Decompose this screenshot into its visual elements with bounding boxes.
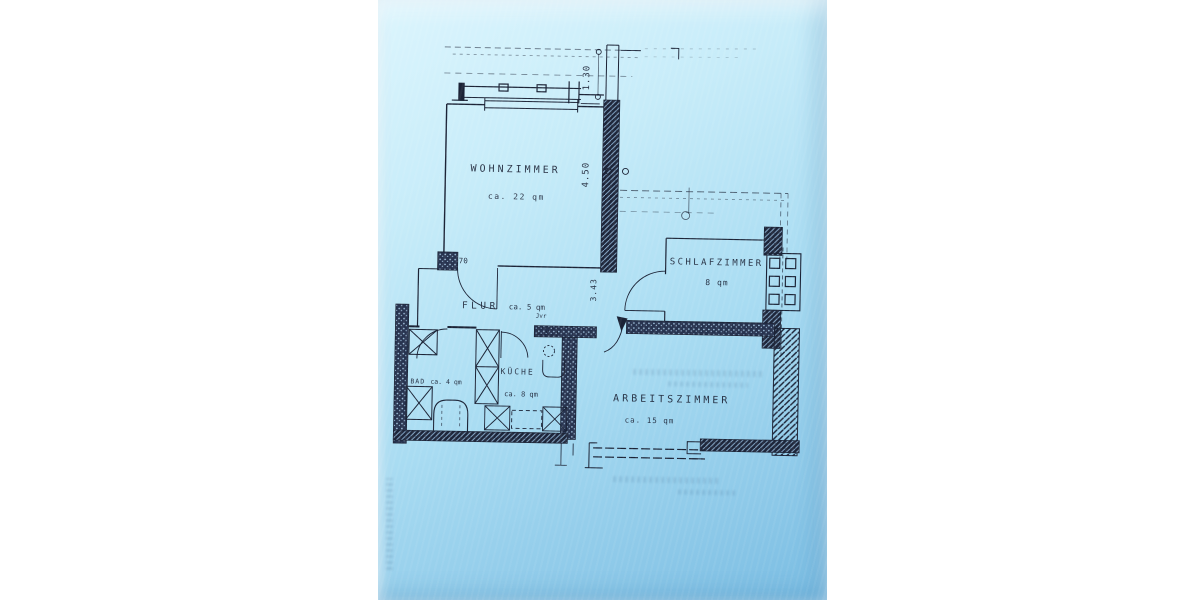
room-area-flur: ca. 5 qm <box>509 302 546 312</box>
scanned-blueprint-page: 1.30 4.50 <box>378 0 827 600</box>
dimension-balcony-depth: 1.30 <box>582 49 601 99</box>
room-label-arbeitszimmer: ARBEITSZIMMER <box>613 393 730 406</box>
dimension-label: 1.30 <box>582 65 592 91</box>
room-area-arbeitszimmer: ca. 15 qm <box>625 415 675 425</box>
party-wall <box>601 45 679 273</box>
room-area-bad: ca. 4 qm <box>430 378 462 387</box>
kueche-fixtures <box>484 327 568 432</box>
dimension-living-room-width: 4.50 <box>581 162 591 188</box>
room-bad-walls <box>393 304 477 445</box>
room-label-bad: BAD <box>410 377 425 385</box>
sink-basin <box>543 345 554 356</box>
room-area-kueche: ca. 8 qm <box>504 390 538 399</box>
room-label-flur: FLUR <box>462 300 499 312</box>
bathtub <box>433 400 468 434</box>
room-area-wohnzimmer: ca. 22 qm <box>488 192 545 202</box>
arbeitszimmer-window <box>555 442 705 470</box>
dimension-door-width: 70 <box>459 256 469 265</box>
room-kueche-walls <box>499 325 596 440</box>
hall-note: Jvr <box>536 313 547 320</box>
room-label-schlafzimmer: SCHLAFZIMMER <box>670 257 764 269</box>
terrace-outline <box>619 186 788 259</box>
duct-shaft <box>475 330 499 404</box>
room-label-wohnzimmer: WOHNZIMMER <box>470 163 560 176</box>
room-area-schlafzimmer: 8 qm <box>705 278 728 287</box>
door-swing-kueche <box>501 332 528 358</box>
balcony-outline <box>444 43 761 107</box>
dimension-hall-depth: 3.43 <box>589 278 598 301</box>
door-leaf-kueche <box>501 331 502 358</box>
room-flur-walls <box>417 268 437 326</box>
door-leaf-schlafzimmer <box>625 310 665 311</box>
room-label-kueche: KÜCHE <box>501 366 535 377</box>
door-swing-schlafzimmer <box>625 270 666 311</box>
floor-plan-drawing: 1.30 4.50 <box>378 0 827 600</box>
photo-background: 1.30 4.50 <box>0 0 1200 600</box>
room-wohnzimmer-walls <box>437 97 604 311</box>
room-schlafzimmer-walls <box>625 237 774 324</box>
exterior-wall-bottom <box>393 430 567 443</box>
